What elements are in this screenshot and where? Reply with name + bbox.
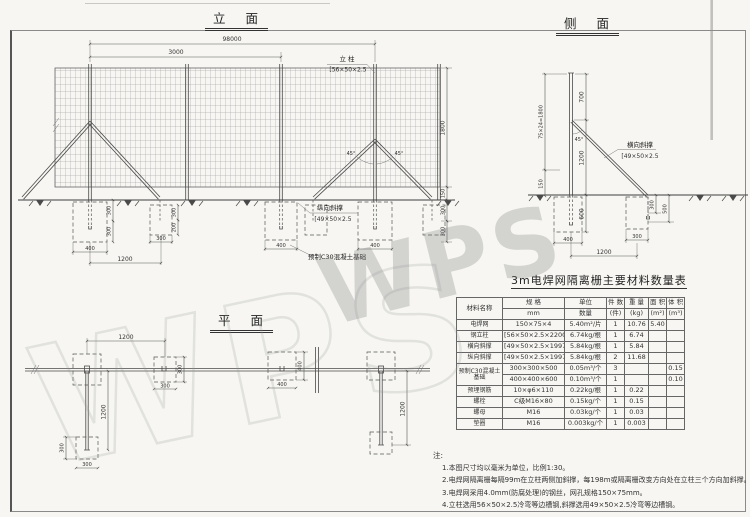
col-unit-unit: 数量 xyxy=(565,309,607,320)
cell-unit: 0.10m³/个 xyxy=(565,375,607,386)
table-row: 预制C30混凝土基础300×300×5000.05m³/个30.15 xyxy=(457,364,685,375)
table-row: 螺栓C级M16×800.15kg/个10.15 xyxy=(457,397,685,408)
cell-volume xyxy=(667,331,685,342)
post-mark xyxy=(85,366,90,373)
fence-line xyxy=(25,369,430,372)
bottom-dimensions: 400 300 1200 400 400 xyxy=(73,235,392,266)
cell-area xyxy=(649,408,667,419)
dim-label: 200 xyxy=(172,223,178,233)
cell-count: 3 xyxy=(607,364,625,375)
cell-volume xyxy=(667,320,685,331)
col-header-weight: 重 量 xyxy=(625,298,649,309)
cell-area xyxy=(649,375,667,386)
materials-table: 材料名称 规 格 单位 件 数 重 量 面 积 体 积 mm 数量 (件) (k… xyxy=(456,297,685,430)
cell-weight: 0.22 xyxy=(625,386,649,397)
table-row: 钢立柱[56×50×2.5×22006.74kg/根16.74 xyxy=(457,331,685,342)
plan-view: 1200 300 300 400 400 300 300 1200 xyxy=(25,334,430,468)
header-row: 材料名称 规 格 单位 件 数 重 量 面 积 体 积 xyxy=(457,298,685,309)
cell-volume xyxy=(667,353,685,364)
cell-weight: 11.68 xyxy=(625,353,649,364)
cell-unit: 0.15kg/个 xyxy=(565,397,607,408)
note-item: 1.本图尺寸均以毫米为单位，比例1:30。 xyxy=(442,462,750,474)
col-header-name: 材料名称 xyxy=(457,298,503,320)
drawing-canvas: 45° 45° 98000 3000 立 柱 xyxy=(0,0,750,517)
col-header-volume: 体 积 xyxy=(667,298,685,309)
dim-label: 400 xyxy=(298,361,304,371)
angle-label: 45° xyxy=(575,137,584,143)
dim-label: 3000 xyxy=(168,49,183,56)
cell-name: 预埋钢筋 xyxy=(457,386,503,397)
col-header-unit: 单位 xyxy=(565,298,607,309)
plan-brace-d xyxy=(378,371,384,445)
left-depth-dimensions: 300 300 300 200 xyxy=(107,200,179,242)
drawing-sheet: 立 面 侧 面 平 面 xyxy=(0,0,750,517)
cell-count: 1 xyxy=(607,408,625,419)
dim-label: 500 xyxy=(663,204,669,214)
cell-area: 5.40 xyxy=(649,320,667,331)
cell-weight: 0.003 xyxy=(625,419,649,430)
cell-count: 1 xyxy=(607,375,625,386)
col-header-spec: 规 格 xyxy=(503,298,565,309)
cell-unit: 0.003kg/个 xyxy=(565,419,607,430)
cell-weight xyxy=(625,364,649,375)
dim-label: 300 xyxy=(632,234,642,240)
dim-label: 150 xyxy=(441,189,447,199)
cell-count: 1 xyxy=(607,342,625,353)
cell-name: 螺母 xyxy=(457,408,503,419)
cell-spec: 10×φ6×110 xyxy=(503,386,565,397)
post-mark xyxy=(379,366,384,373)
materials-table-title: 3m电焊网隔离栅主要材料数量表 xyxy=(511,272,687,289)
cell-count: 1 xyxy=(607,320,625,331)
cell-spec: M16 xyxy=(503,419,565,430)
dim-label: 300 xyxy=(178,365,184,375)
note-item: 3.电焊网采用4.0mm(防腐处理)的钢丝，网孔规格150×75mm。 xyxy=(442,487,750,499)
angle-label: 45° xyxy=(395,151,404,157)
cell-spec: [49×50×2.5×1997 xyxy=(503,342,565,353)
notes-label: 注: xyxy=(433,449,750,462)
dim-label: 1200 xyxy=(400,401,407,416)
dim-label: 300 xyxy=(172,208,178,218)
foundations xyxy=(73,202,445,242)
materials-table-body: 电焊网150×75×45.40m²/片110.765.40钢立柱[56×50×2… xyxy=(457,320,685,430)
cell-count: 1 xyxy=(607,331,625,342)
col-unit-spec: mm xyxy=(503,309,565,320)
side-view-title: 侧 面 xyxy=(556,13,619,36)
middle-dimensions: 700 1200 600 xyxy=(574,74,589,232)
cell-unit: 5.84kg/根 xyxy=(565,342,607,353)
ground-hatch xyxy=(529,195,744,201)
cell-area xyxy=(649,397,667,408)
cell-volume xyxy=(667,408,685,419)
post-spec: [56×50×2.5 xyxy=(329,67,366,74)
cell-spec: [56×50×2.5×2200 xyxy=(503,331,565,342)
col-unit-count: (件) xyxy=(607,309,625,320)
cell-count: 1 xyxy=(607,419,625,430)
cell-count: 1 xyxy=(607,397,625,408)
dim-label: 300 xyxy=(82,462,92,468)
cell-name: 钢立柱 xyxy=(457,331,503,342)
cell-name: 螺栓 xyxy=(457,397,503,408)
dim-label: 1200 xyxy=(117,256,132,263)
cell-unit: 0.22kg/根 xyxy=(565,386,607,397)
cell-weight: 6.74 xyxy=(625,331,649,342)
cell-weight: 5.84 xyxy=(625,342,649,353)
post-bottoms xyxy=(89,226,377,229)
cell-area xyxy=(649,353,667,364)
cell-weight: 0.15 xyxy=(625,397,649,408)
brace-callout: 纵向斜撑 [49×50×2.5 xyxy=(298,203,358,223)
cell-unit: 0.05m³/个 xyxy=(565,364,607,375)
dim-label: 700 xyxy=(579,91,586,103)
cell-name: 预制C30混凝土基础 xyxy=(457,364,503,386)
cell-volume: 0.10 xyxy=(667,375,685,386)
right-dimensions: 300 500 xyxy=(648,195,674,222)
elevation-view: 45° 45° 98000 3000 立 柱 xyxy=(18,36,459,266)
col-unit-volume: (m³) xyxy=(667,309,685,320)
cell-volume xyxy=(667,397,685,408)
cell-unit: 5.84kg/根 xyxy=(565,353,607,364)
cell-area xyxy=(649,342,667,353)
col-header-count: 件 数 xyxy=(607,298,625,309)
cell-count: 2 xyxy=(607,353,625,364)
dim-label: 400 xyxy=(370,243,380,249)
cell-spec: 400×400×600 xyxy=(503,375,565,386)
dim-label: 400 xyxy=(563,237,573,243)
table-row: 螺母M160.03kg/个10.03 xyxy=(457,408,685,419)
foundations xyxy=(73,352,395,459)
note-item: 2.电焊网隔离栅每隔99m在立柱两侧加斜撑，每198m或隔离栅改变方向处在立柱三… xyxy=(442,474,750,486)
dim-label: 150 xyxy=(539,179,545,189)
dim-label: 300 xyxy=(441,206,447,216)
cell-weight xyxy=(625,375,649,386)
cell-weight: 0.03 xyxy=(625,408,649,419)
cell-name: 垫圈 xyxy=(457,419,503,430)
embedded-post xyxy=(570,195,573,222)
dim-label: 400 xyxy=(85,246,95,252)
side-brace xyxy=(571,120,650,219)
cell-spec: M16 xyxy=(503,408,565,419)
cell-name: 电焊网 xyxy=(457,320,503,331)
col-unit-area: (m²) xyxy=(649,309,667,320)
table-row: 预埋钢筋10×φ6×1100.22kg/根10.22 xyxy=(457,386,685,397)
dim-label: 300 xyxy=(60,443,66,453)
cell-count: 1 xyxy=(607,386,625,397)
cell-area xyxy=(649,331,667,342)
cell-name: 横向斜撑 xyxy=(457,342,503,353)
table-row: 纵向斜撑[49×50×2.5×19975.84kg/根211.68 xyxy=(457,353,685,364)
right-dimensions: 1800 150 300 300 xyxy=(440,68,453,242)
cell-unit: 6.74kg/根 xyxy=(565,331,607,342)
brace-label: 纵向斜撑 xyxy=(317,203,344,212)
dim-label: 1200 xyxy=(101,404,108,419)
cell-spec: 150×75×4 xyxy=(503,320,565,331)
cell-name: 纵向斜撑 xyxy=(457,353,503,364)
brace-spec: [49×50×2.5 xyxy=(621,153,658,160)
splice-mark xyxy=(316,347,319,393)
note-item: 4.立柱选用56×50×2.5冷弯等边槽钢,斜撑选用49×50×2.5冷弯等边槽… xyxy=(442,499,750,511)
left-dimensions: 75×24=1800 150 xyxy=(539,74,568,196)
dim-label: 1200 xyxy=(118,334,133,341)
cell-area xyxy=(649,364,667,375)
table-row: 垫圈M160.003kg/个10.003 xyxy=(457,419,685,430)
brace-spec: [49×50×2.5 xyxy=(314,216,351,223)
ground-hatch xyxy=(29,200,459,206)
brace-label: 横向斜撑 xyxy=(627,140,654,149)
dim-label: 1200 xyxy=(579,150,586,165)
dim-label: 75×24=1800 xyxy=(539,105,545,139)
dim-label: 98000 xyxy=(222,36,241,43)
dim-label: 1800 xyxy=(440,120,447,135)
brace-callout: 横向斜撑 [49×50×2.5 xyxy=(604,140,659,160)
cell-weight: 10.76 xyxy=(625,320,649,331)
plan-brace-a xyxy=(84,371,90,450)
dim-label: 300 xyxy=(160,384,170,390)
dim-label: 300 xyxy=(156,236,166,242)
cell-spec: [49×50×2.5×1997 xyxy=(503,353,565,364)
cell-volume xyxy=(667,386,685,397)
materials-section: 3m电焊网隔离栅主要材料数量表 材料名称 规 格 单位 件 数 重 量 面 积 … xyxy=(456,269,687,430)
col-header-area: 面 积 xyxy=(649,298,667,309)
cell-area xyxy=(649,386,667,397)
foundations xyxy=(554,197,648,232)
cell-area xyxy=(649,419,667,430)
col-unit-weight: (kg) xyxy=(625,309,649,320)
post-label: 立 柱 xyxy=(339,54,355,63)
dim-label: 300 xyxy=(650,200,656,210)
plan-dimensions: 1200 300 300 400 400 300 300 1200 xyxy=(60,334,412,468)
dim-label: 400 xyxy=(277,382,287,388)
dim-label: 600 xyxy=(579,208,586,220)
cell-spec: C级M16×80 xyxy=(503,397,565,408)
dim-label: 300 xyxy=(107,227,113,237)
angle-label: 45° xyxy=(347,151,356,157)
cell-volume: 0.15 xyxy=(667,364,685,375)
cell-unit: 0.03kg/个 xyxy=(565,408,607,419)
top-dimensions: 98000 3000 xyxy=(90,36,375,62)
break-marks xyxy=(31,365,424,374)
mesh-panel xyxy=(55,68,440,187)
dim-label: 300 xyxy=(107,206,113,216)
notes-list: 1.本图尺寸均以毫米为单位，比例1:30。2.电焊网隔离栅每隔99m在立柱两侧加… xyxy=(433,462,750,511)
dim-label: 300 xyxy=(441,227,447,237)
plan-view-title: 平 面 xyxy=(210,310,273,333)
elevation-view-title: 立 面 xyxy=(205,8,268,31)
table-row: 电焊网150×75×45.40m²/片110.765.40 xyxy=(457,320,685,331)
side-view: 45° 75×24=1800 150 700 1200 60 xyxy=(528,73,748,259)
cell-spec: 300×300×500 xyxy=(503,364,565,375)
bottom-dimensions: 400 300 1200 xyxy=(554,229,648,259)
post-bottom xyxy=(570,222,573,225)
foundation-label: 预制C30混凝土基础 xyxy=(308,252,367,261)
dim-label: 1200 xyxy=(596,249,611,256)
foundation-callout: 预制C30混凝土基础 xyxy=(290,245,367,261)
table-row: 横向斜撑[49×50×2.5×19975.84kg/根15.84 xyxy=(457,342,685,353)
notes-block: 注: 1.本图尺寸均以毫米为单位，比例1:30。2.电焊网隔离栅每隔99m在立柱… xyxy=(433,449,750,511)
dim-label: 400 xyxy=(276,243,286,249)
cell-volume xyxy=(667,342,685,353)
cell-unit: 5.40m²/片 xyxy=(565,320,607,331)
cell-volume xyxy=(667,419,685,430)
